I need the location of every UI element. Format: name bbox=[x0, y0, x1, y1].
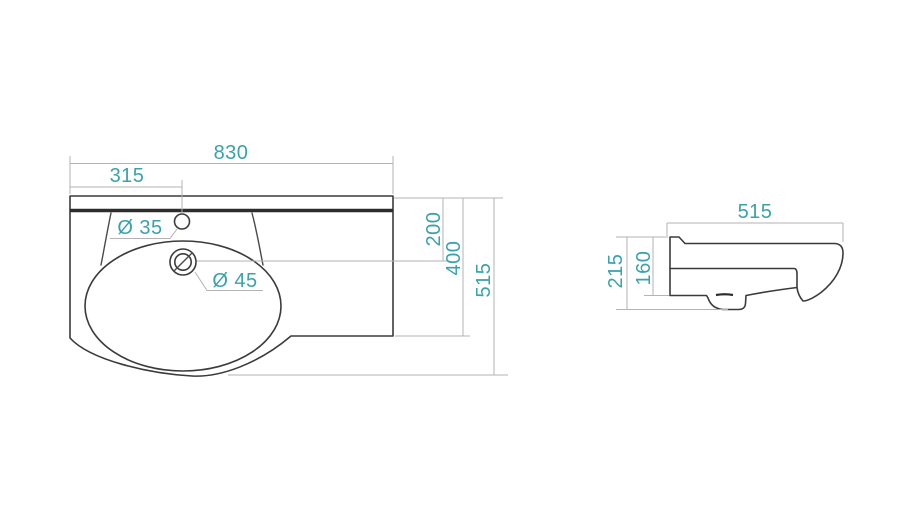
technical-drawing-page: 830 315 Ø 35 Ø 45 200 400 bbox=[0, 0, 900, 524]
dim-label-width: 830 bbox=[214, 142, 249, 164]
front-view: 830 315 Ø 35 Ø 45 200 400 bbox=[70, 142, 508, 376]
side-view-outline bbox=[670, 237, 843, 310]
dim-label-side-depth: 515 bbox=[738, 201, 773, 223]
dim-label-total-depth: 515 bbox=[473, 263, 495, 298]
drain-edge-line bbox=[716, 294, 733, 295]
dim-label-total-height: 215 bbox=[605, 254, 627, 289]
dim-label-body-depth: 400 bbox=[443, 241, 465, 276]
dim-label-drain-depth: 200 bbox=[423, 212, 445, 247]
dim-label-faucet-offset: 315 bbox=[110, 165, 145, 187]
washbasin-drawing: 830 315 Ø 35 Ø 45 200 400 bbox=[0, 0, 900, 524]
side-view: 515 215 160 bbox=[605, 201, 843, 310]
dim-side-depth: 515 bbox=[667, 201, 843, 242]
dim-label-faucet-hole: Ø 35 bbox=[117, 217, 162, 239]
dim-label-drain-hole: Ø 45 bbox=[212, 270, 257, 292]
dim-label-body-height: 160 bbox=[633, 251, 655, 286]
